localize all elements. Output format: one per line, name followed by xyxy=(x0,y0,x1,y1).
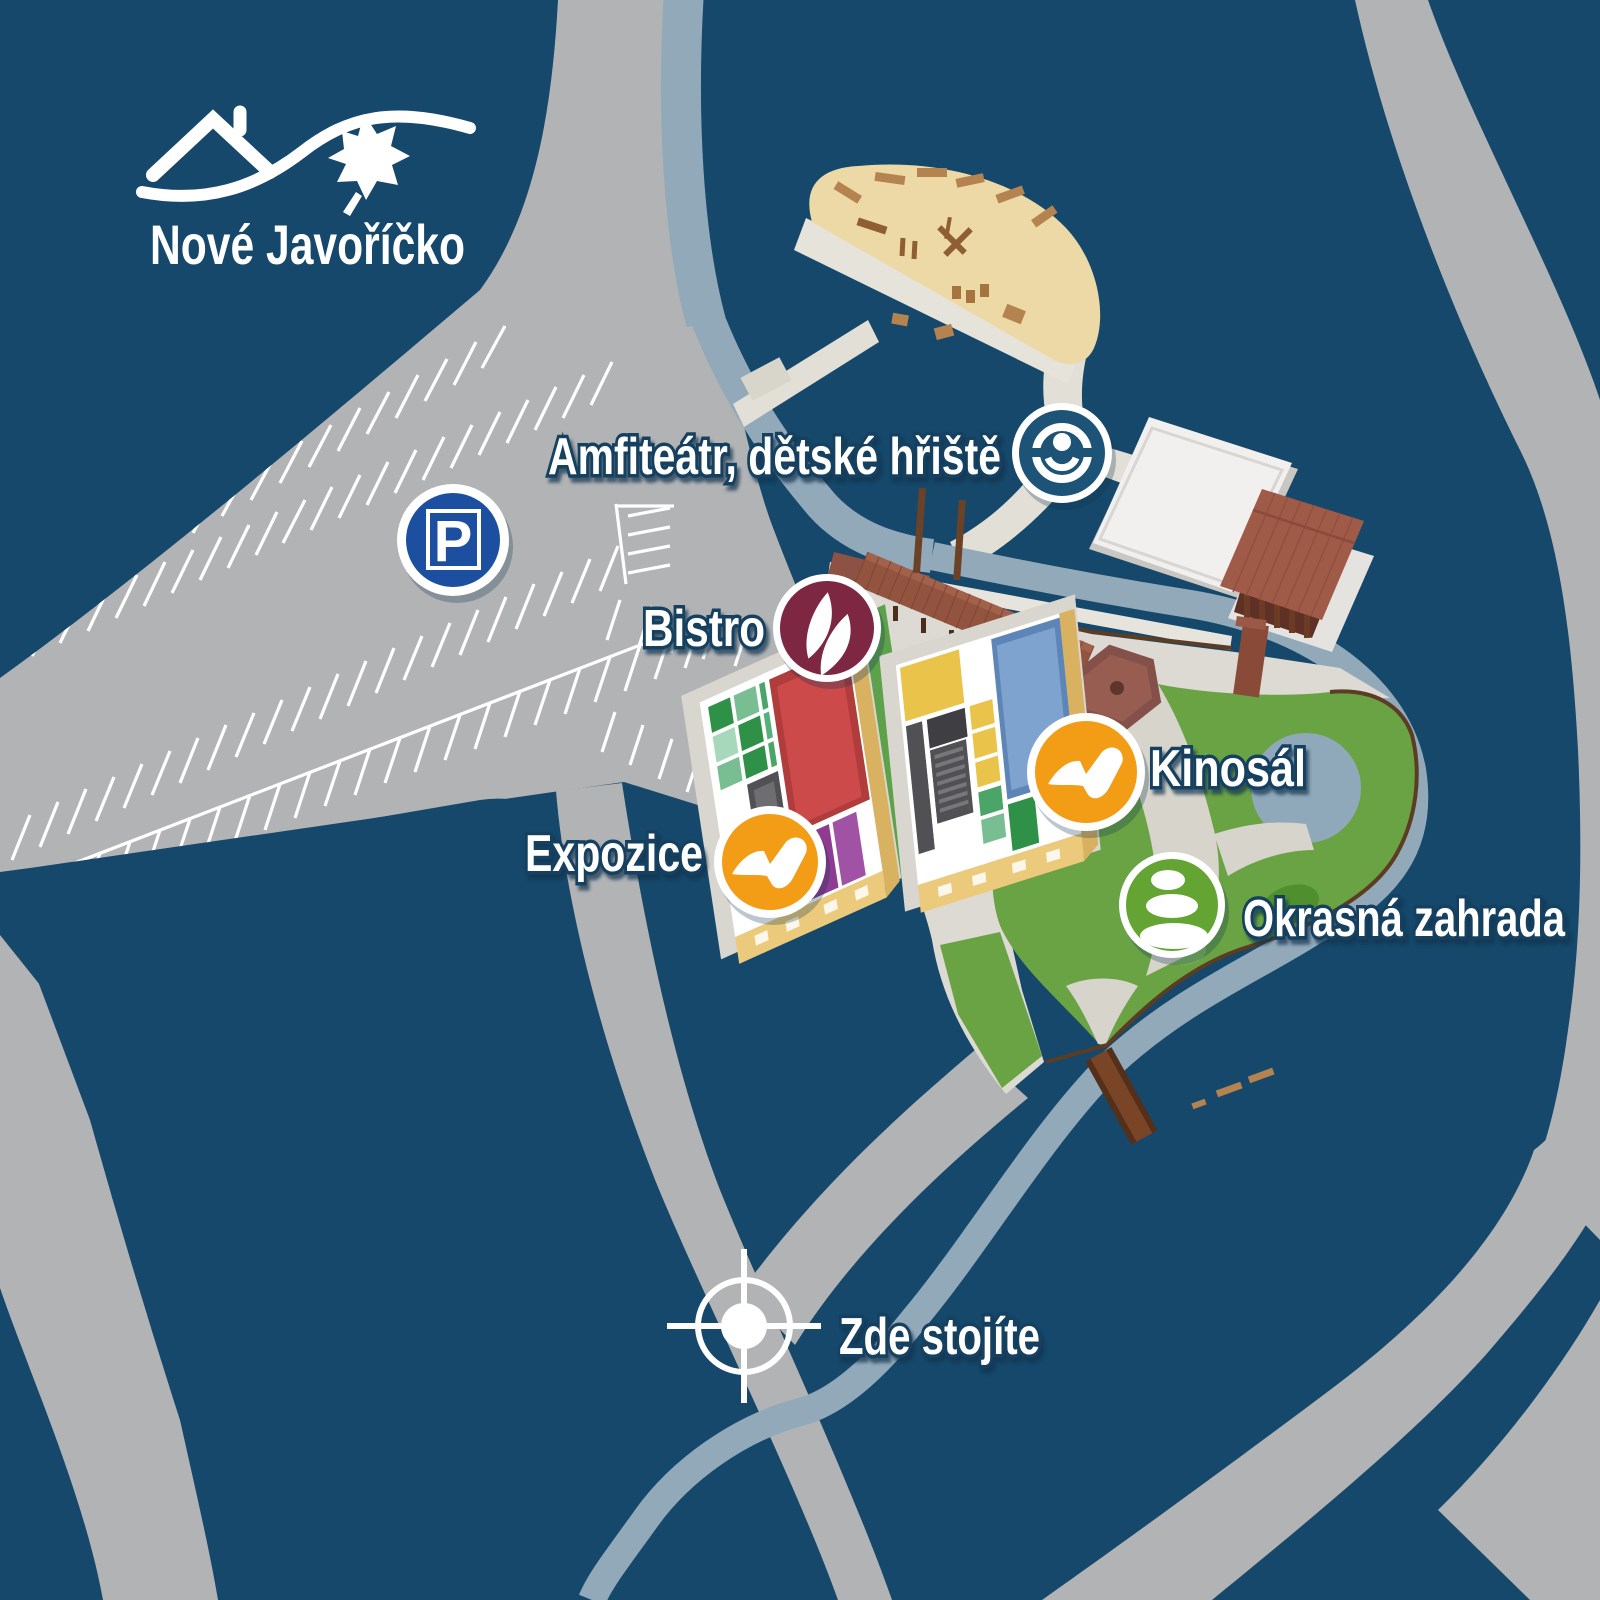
svg-text:Amfiteátr, dětské hřiště: Amfiteátr, dětské hřiště xyxy=(548,428,1001,486)
svg-text:Kinosál: Kinosál xyxy=(1150,740,1306,798)
svg-text:Zde stojíte: Zde stojíte xyxy=(839,1308,1040,1366)
svg-text:Bistro: Bistro xyxy=(643,600,765,658)
svg-text:P: P xyxy=(434,509,473,574)
svg-text:Nové Javoříčko: Nové Javoříčko xyxy=(150,213,465,276)
svg-text:Okrasná zahrada: Okrasná zahrada xyxy=(1243,890,1566,948)
svg-text:Expozice: Expozice xyxy=(525,825,703,883)
